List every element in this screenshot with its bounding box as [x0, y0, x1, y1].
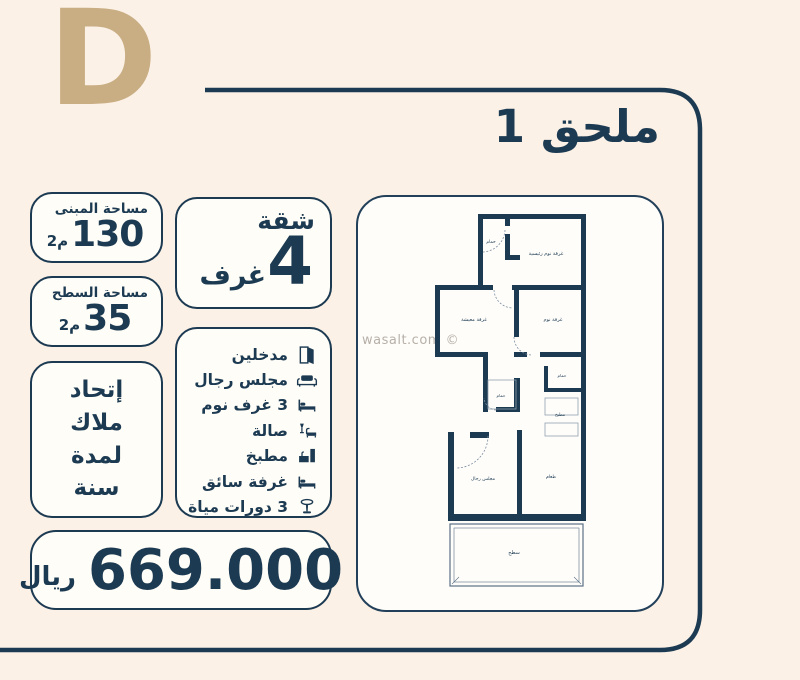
page-title: ملحق 1: [380, 100, 660, 153]
building-area-value: 130 م2: [42, 214, 148, 255]
owners-union-box: إتحاد ملاك لمدة سنة: [30, 361, 163, 518]
building-area-box: مساحة المبنى 130 م2: [30, 192, 163, 263]
apartment-rooms-row: 4 غرف: [187, 227, 315, 296]
plan-walls: [435, 214, 586, 521]
amenity-label: 3 غرف نوم: [201, 396, 288, 414]
amenity-row: مطبخ: [185, 444, 319, 469]
roof-area-value: 35 م2: [42, 298, 148, 339]
amenity-row: صالة: [185, 418, 319, 443]
room-label-terrace: سطح: [508, 550, 520, 556]
apartment-rooms-count: 4: [267, 227, 313, 296]
room-label-living-room: غرفة معيشة: [461, 317, 487, 323]
bed-icon: [295, 395, 319, 415]
door-icon: [295, 345, 319, 365]
room-label-bathroom-top: حمام: [486, 240, 496, 245]
floor-plan-drawing: غرفة نوم رئيسية حمام غرفة معيشة غرفة نوم…: [355, 195, 665, 615]
union-line: إتحاد: [70, 374, 124, 407]
room-label-bedroom: غرفة نوم: [543, 317, 562, 323]
flyer-canvas: D ملحق 1 مساحة المبنى 130 م2 مساحة السطح…: [0, 0, 800, 680]
room-label-master-bedroom: غرفة نوم رئيسية: [529, 251, 564, 257]
apartment-type-box: شقة 4 غرف: [175, 197, 332, 309]
room-label-mens-majlis: مجلس رجال: [471, 477, 496, 482]
amenity-label: صالة: [252, 422, 288, 440]
room-label-dining: طعام: [546, 475, 556, 480]
room-label-bathroom-middle: حمام: [558, 373, 567, 378]
amenity-label: مدخلين: [232, 346, 288, 364]
lounge-icon: [295, 421, 319, 441]
amenity-row: غرفة سائق: [185, 469, 319, 494]
price-amount: 669.000: [88, 538, 343, 603]
room-label-kitchen: مطبخ: [555, 413, 565, 418]
building-area-number: 130: [71, 214, 143, 255]
basin-icon: [295, 497, 319, 517]
apartment-rooms-unit: غرف: [199, 260, 266, 291]
amenity-row: مدخلين: [185, 342, 319, 367]
sofa-icon: [295, 370, 319, 390]
amenity-label: غرفة سائق: [202, 473, 288, 491]
bed-icon: [295, 472, 319, 492]
roof-area-number: 35: [83, 298, 131, 339]
price-currency: ريال: [19, 562, 76, 592]
unit-letter: D: [48, 0, 158, 129]
building-area-unit: م2: [47, 232, 68, 250]
amenity-row: مجلس رجال: [185, 367, 319, 392]
amenity-row: 3 دورات مياة: [185, 494, 319, 519]
union-line: سنة: [74, 472, 120, 505]
amenity-label: مجلس رجال: [194, 371, 288, 389]
amenity-label: 3 دورات مياة: [188, 498, 288, 516]
kitchen-icon: [295, 446, 319, 466]
roof-area-box: مساحة السطح 35 م2: [30, 276, 163, 347]
union-line: لمدة: [71, 440, 122, 473]
amenity-row: 3 غرف نوم: [185, 393, 319, 418]
room-label-bathroom-left: حمام: [497, 393, 506, 398]
roof-area-unit: م2: [59, 316, 80, 334]
amenities-box: مدخلين مجلس رجال 3 غرف نو: [175, 327, 332, 518]
union-line: ملاك: [70, 407, 123, 440]
amenity-label: مطبخ: [246, 447, 288, 465]
price-box: 669.000 ريال: [30, 530, 332, 610]
